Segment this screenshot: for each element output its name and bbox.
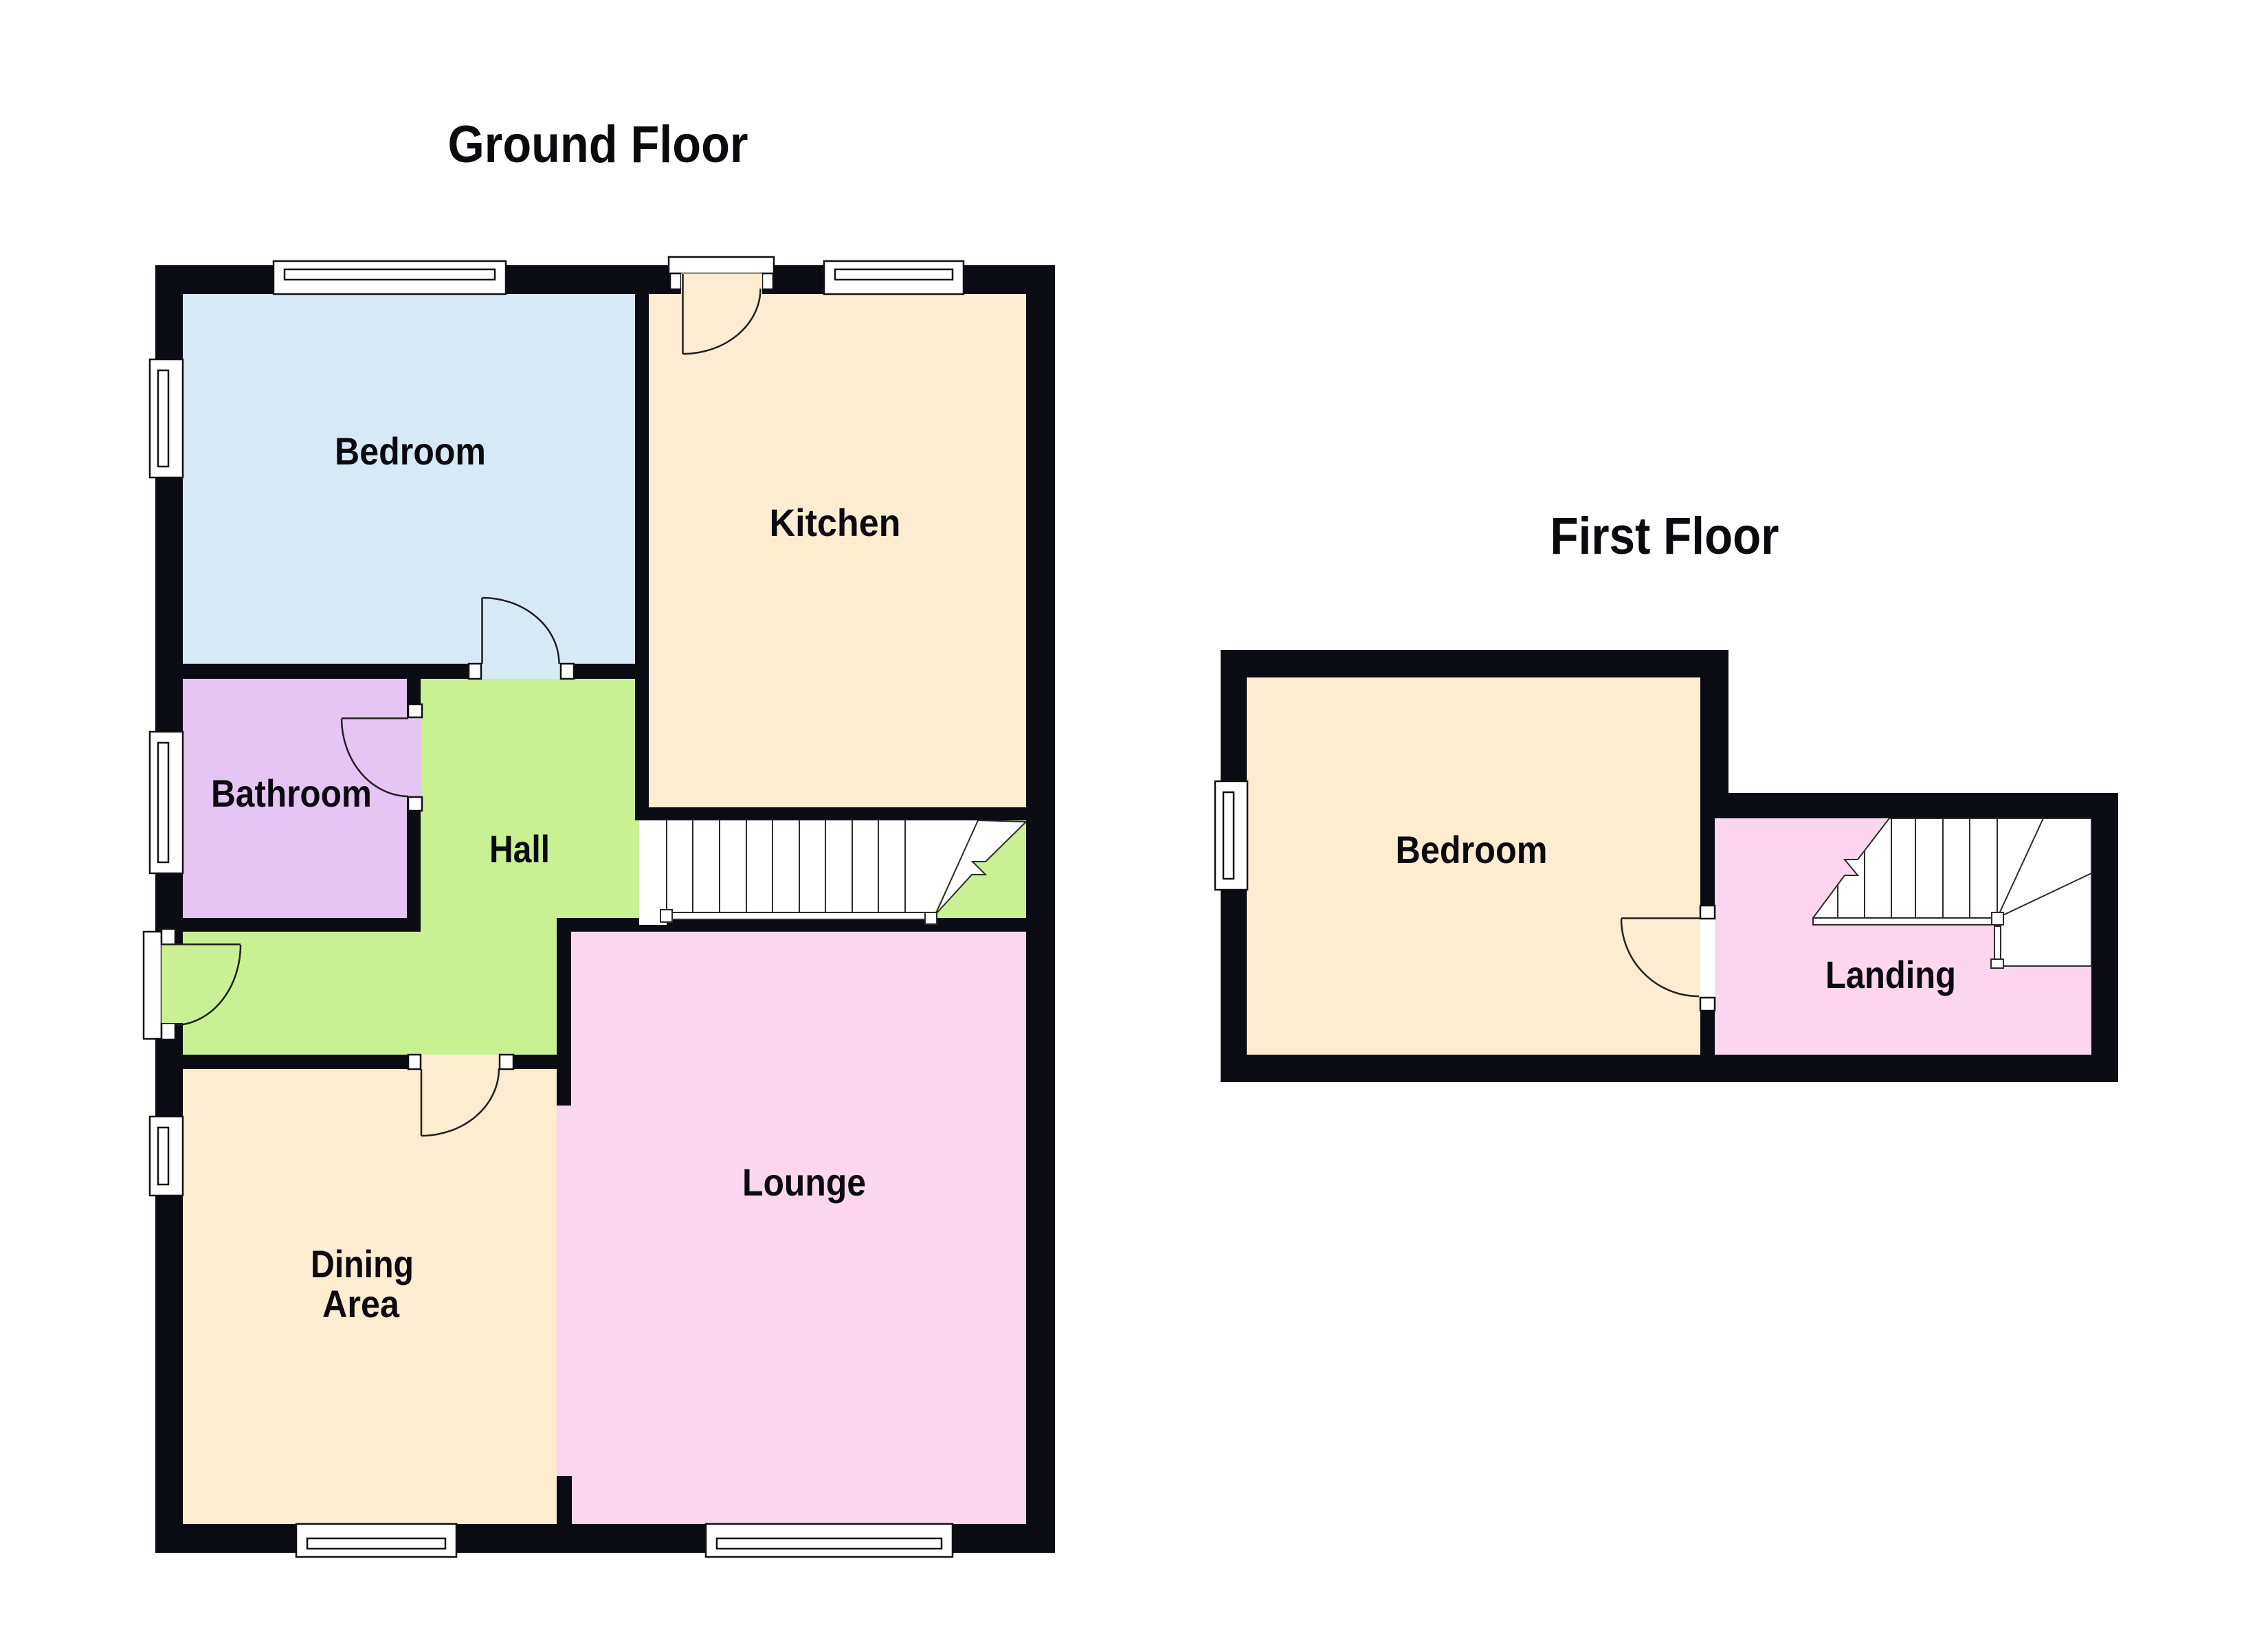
svg-text:First Floor: First Floor	[1550, 507, 1779, 565]
svg-text:Bedroom: Bedroom	[335, 429, 486, 473]
svg-text:Bedroom: Bedroom	[1396, 828, 1548, 871]
svg-text:Bathroom: Bathroom	[211, 772, 372, 815]
svg-text:Kitchen: Kitchen	[770, 501, 901, 544]
svg-text:Lounge: Lounge	[742, 1160, 866, 1204]
svg-text:Ground Floor: Ground Floor	[448, 115, 748, 174]
svg-text:Dining: Dining	[311, 1242, 414, 1286]
svg-text:Hall: Hall	[489, 827, 550, 871]
svg-text:Landing: Landing	[1825, 953, 1956, 996]
svg-text:Area: Area	[322, 1282, 400, 1325]
